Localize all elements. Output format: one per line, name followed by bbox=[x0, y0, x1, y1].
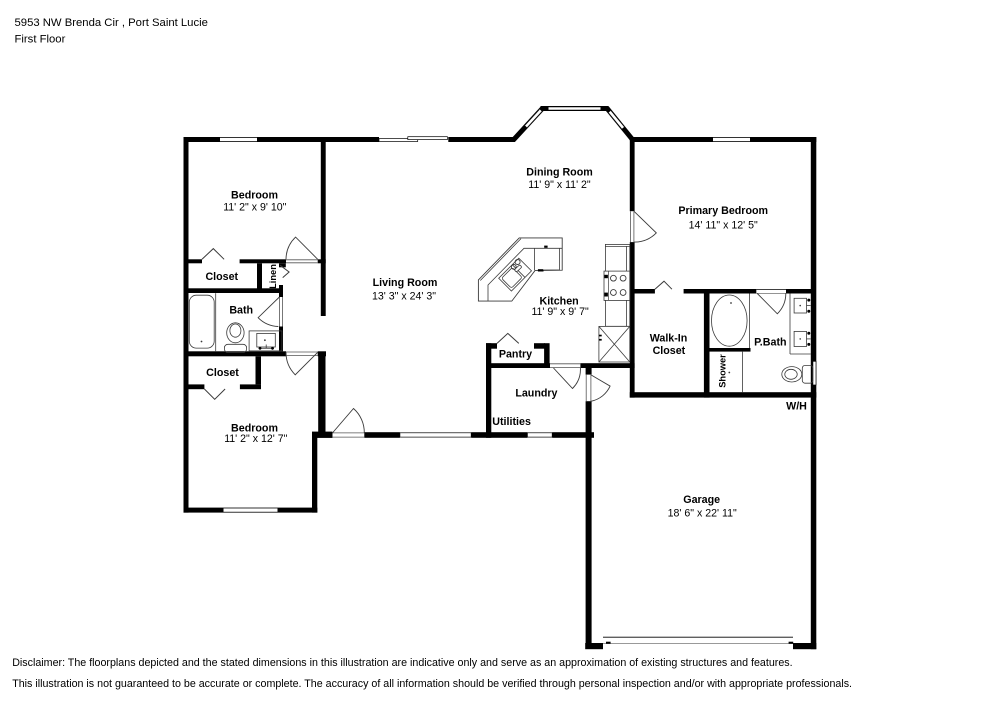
svg-text:Closet: Closet bbox=[206, 367, 239, 379]
svg-text:Utilities: Utilities bbox=[492, 416, 531, 428]
svg-text:Laundry: Laundry bbox=[515, 388, 557, 400]
svg-text:11' 9" x 9' 7": 11' 9" x 9' 7" bbox=[531, 306, 589, 318]
svg-text:5953 NW Brenda Cir , Port Sain: 5953 NW Brenda Cir , Port Saint Lucie bbox=[15, 17, 208, 29]
svg-text:11' 2" x 12' 7": 11' 2" x 12' 7" bbox=[224, 433, 287, 445]
svg-text:Closet: Closet bbox=[205, 271, 238, 283]
svg-text:This illustration is not guara: This illustration is not guaranteed to b… bbox=[12, 678, 852, 690]
svg-text:Walk-In: Walk-In bbox=[650, 333, 688, 345]
svg-text:Pantry: Pantry bbox=[499, 349, 532, 361]
svg-text:Dining Room: Dining Room bbox=[526, 166, 593, 178]
svg-text:11' 9" x 11' 2": 11' 9" x 11' 2" bbox=[528, 179, 591, 191]
svg-text:14' 11" x 12' 5": 14' 11" x 12' 5" bbox=[689, 219, 758, 231]
svg-text:Shower: Shower bbox=[718, 354, 728, 388]
svg-text:W/H: W/H bbox=[786, 400, 807, 412]
svg-text:Disclaimer: The floorplans dep: Disclaimer: The floorplans depicted and … bbox=[12, 657, 792, 669]
svg-text:First Floor: First Floor bbox=[15, 34, 66, 46]
svg-text:Garage: Garage bbox=[683, 494, 720, 506]
svg-text:Bedroom: Bedroom bbox=[231, 189, 278, 201]
svg-text:Living Room: Living Room bbox=[373, 277, 438, 289]
svg-text:Linen: Linen bbox=[268, 264, 278, 289]
svg-text:13' 3" x 24' 3": 13' 3" x 24' 3" bbox=[372, 291, 436, 303]
svg-text:11' 2" x 9' 10": 11' 2" x 9' 10" bbox=[223, 202, 286, 214]
svg-text:P.Bath: P.Bath bbox=[754, 336, 786, 348]
svg-text:Bath: Bath bbox=[229, 304, 253, 316]
svg-text:Closet: Closet bbox=[653, 345, 686, 357]
svg-text:Primary Bedroom: Primary Bedroom bbox=[678, 205, 768, 217]
svg-text:18' 6" x 22' 11": 18' 6" x 22' 11" bbox=[668, 507, 737, 519]
